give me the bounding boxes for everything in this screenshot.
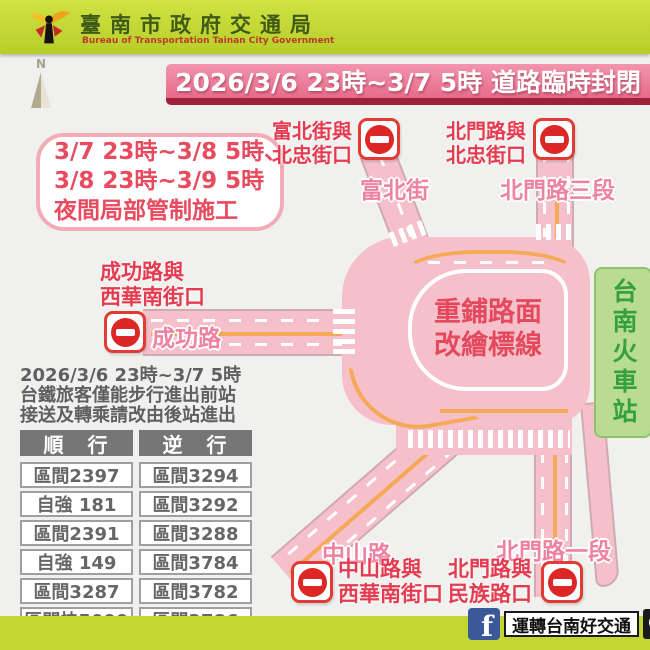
no-entry-sign-icon [358,118,400,160]
facebook-f-glyph: f [481,614,493,640]
rail-notice-line: 台鐵旅客僅能步行進出前站 [20,386,241,406]
closure-line: 西華南街口 [100,285,205,310]
closure-line: 富北街與 [272,120,352,144]
train-cell: 區間3782 [139,578,252,604]
closure-line: 成功路與 [100,260,205,285]
column-header-reverse: 逆 行 [139,430,252,456]
north-arrow-icon [31,72,51,108]
traffic-closure-poster: 臺南市政府交通局 Bureau of Transportation Tainan… [0,0,650,650]
night-works-notice: 3/7 23時~3/8 5時、 3/8 23時~3/9 5時 夜間局部管制施工 [36,133,284,231]
no-entry-sign-icon [104,311,146,353]
train-cell: 區間3784 [139,549,252,575]
table-header-row: 順 行 逆 行 [20,430,260,456]
train-cell: 自強 149 [20,549,133,575]
table-row: 區間2391 區間3288 [20,520,260,546]
closure-line: 北門路與 [446,120,526,144]
agency-name-en: Bureau of Transportation Tainan City Gov… [82,36,334,46]
table-row: 自強 181 區間3292 [20,491,260,517]
lane-dashes [428,261,554,264]
train-cell: 區間3292 [139,491,252,517]
closure-line: 北忠街口 [272,144,352,168]
table-row: 區間3287 區間3782 [20,578,260,604]
notice-line: 3/7 23時~3/8 5時、 [54,138,280,167]
notice-line: 3/8 23時~3/9 5時 [54,167,280,196]
poster-title: 2026/3/6 23時~3/7 5時 道路臨時封閉 [175,63,641,99]
train-cell: 區間3294 [139,462,252,488]
train-cell: 區間2391 [20,520,133,546]
lane-line [440,409,568,413]
bureau-logo-icon [26,5,72,51]
table-row: 區間2397 區間3294 [20,462,260,488]
closure-label-zhongshan: 中山路與 西華南街口 [338,557,443,607]
compass-n-label: N [28,58,54,70]
closure-line: 民族路口 [448,582,532,607]
header-bar: 臺南市政府交通局 Bureau of Transportation Tainan… [0,0,650,54]
tainan-station-building: 台南火車站 [594,267,650,438]
search-button[interactable] [643,609,650,639]
column-header-forward: 順 行 [20,430,133,456]
train-cell: 區間3287 [20,578,133,604]
train-cell: 區間3288 [139,520,252,546]
station-label: 台南火車站 [605,278,641,428]
agency-name-zh: 臺南市政府交通局 [80,9,320,39]
crosswalk [536,224,574,240]
title-banner: 2026/3/6 23時~3/7 5時 道路臨時封閉 [166,64,650,105]
road-label-beimen3: 北門路三段 [500,171,615,205]
no-entry-sign-icon [291,561,333,603]
facebook-page-bar[interactable]: f 運轉台南好交通 [468,608,650,640]
repaving-label-line: 重鋪路面 [434,297,542,330]
road-label-chenggong: 成功路 [152,319,221,353]
road-label-fubei: 富北街 [360,171,429,205]
repaving-zone: 重鋪路面 改繪標線 [408,269,568,391]
closure-line: 北門路與 [448,557,532,582]
closure-line: 中山路與 [338,557,443,582]
closure-label-fubei: 富北街與 北忠街口 [272,120,352,167]
no-entry-sign-icon [533,118,575,160]
rail-notice-line: 接送及轉乘請改由後站進出 [20,406,241,426]
facebook-page-name[interactable]: 運轉台南好交通 [504,611,639,637]
crosswalk [408,430,570,448]
crosswalk [333,309,355,356]
train-cell: 區間2397 [20,462,133,488]
rail-notice-line: 2026/3/6 23時~3/7 5時 [20,366,241,386]
closure-line: 西華南街口 [338,582,443,607]
train-cell: 自強 181 [20,491,133,517]
no-entry-sign-icon [541,561,583,603]
repaving-label-line: 改繪標線 [434,330,542,363]
north-compass-icon: N [28,58,54,112]
closure-label-chenggong: 成功路與 西華南街口 [100,260,205,310]
closure-label-beimen-south: 北門路與 民族路口 [448,557,532,607]
closure-label-beimen-north: 北門路與 北忠街口 [446,120,526,167]
notice-line: 夜間局部管制施工 [54,197,280,226]
facebook-icon[interactable]: f [468,608,500,640]
closure-line: 北忠街口 [446,144,526,168]
table-row: 自強 149 區間3784 [20,549,260,575]
rail-access-notice: 2026/3/6 23時~3/7 5時 台鐵旅客僅能步行進出前站 接送及轉乘請改… [20,366,241,426]
